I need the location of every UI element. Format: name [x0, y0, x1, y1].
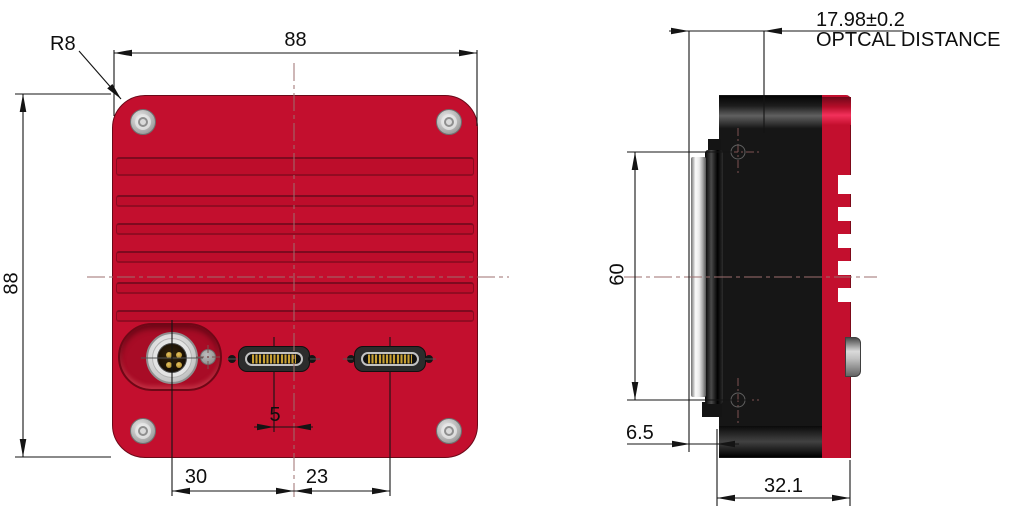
connector-pin	[166, 352, 172, 358]
groove-band	[116, 195, 474, 207]
heatsink-fin	[836, 275, 851, 288]
connector-mount-dot	[228, 355, 236, 363]
groove-band	[116, 251, 474, 263]
cameralink-connector-left	[238, 346, 310, 372]
side-connector-knob	[845, 337, 861, 377]
data-offset-label: 23	[293, 466, 341, 489]
optical-distance-caption: OPTCAL DISTANCE	[816, 29, 1000, 52]
connector-pin	[166, 362, 172, 368]
front-plate-step	[702, 402, 722, 417]
power-connector	[146, 332, 198, 384]
camera-technical-drawing: R8 88 88 5 30 23 60 6.5 32.1 17.98±0.2 O…	[0, 0, 1020, 517]
mount-spacing-label: 60	[607, 256, 630, 294]
groove-band	[116, 282, 474, 294]
connector-offset-label: 5	[262, 404, 288, 427]
connector-pin	[176, 352, 182, 358]
side-view-body	[719, 95, 822, 458]
corner-screw-icon	[436, 418, 462, 444]
lens-mount-ring	[705, 150, 723, 404]
back-view-body	[112, 95, 478, 458]
power-offset-label: 30	[172, 466, 220, 489]
indicator-screw-icon	[200, 349, 216, 365]
height-dimension-label: 88	[1, 266, 24, 302]
heatsink-fin	[836, 221, 851, 234]
power-connector-core	[157, 343, 187, 373]
connector-mount-dot	[425, 355, 433, 363]
heatsink-fin	[836, 194, 851, 207]
corner-screw-icon	[436, 109, 462, 135]
corner-screw-icon	[130, 418, 156, 444]
groove-band	[116, 157, 474, 176]
connector-shell	[361, 352, 419, 366]
connector-mount-dot	[347, 355, 355, 363]
lens-flange	[691, 157, 706, 397]
cameralink-connector-right	[354, 346, 426, 372]
groove-band	[116, 310, 474, 322]
heatsink-highlight	[822, 97, 851, 125]
connector-shell	[245, 352, 303, 366]
body-depth-label: 32.1	[717, 475, 850, 498]
connector-pins	[368, 355, 412, 364]
corner-screw-icon	[130, 109, 156, 135]
connector-mount-dot	[308, 355, 316, 363]
body-highlight	[719, 96, 822, 129]
corner-radius-label: R8	[50, 33, 76, 56]
connector-pin	[176, 362, 182, 368]
heatsink-bottom	[822, 312, 851, 458]
groove-band	[116, 223, 474, 235]
connector-pins	[252, 355, 296, 364]
body-highlight	[719, 426, 822, 457]
flange-depth-label: 6.5	[626, 422, 654, 445]
heatsink-fin	[836, 248, 851, 261]
heatsink-fin	[836, 302, 851, 312]
width-dimension-label: 88	[114, 29, 477, 52]
